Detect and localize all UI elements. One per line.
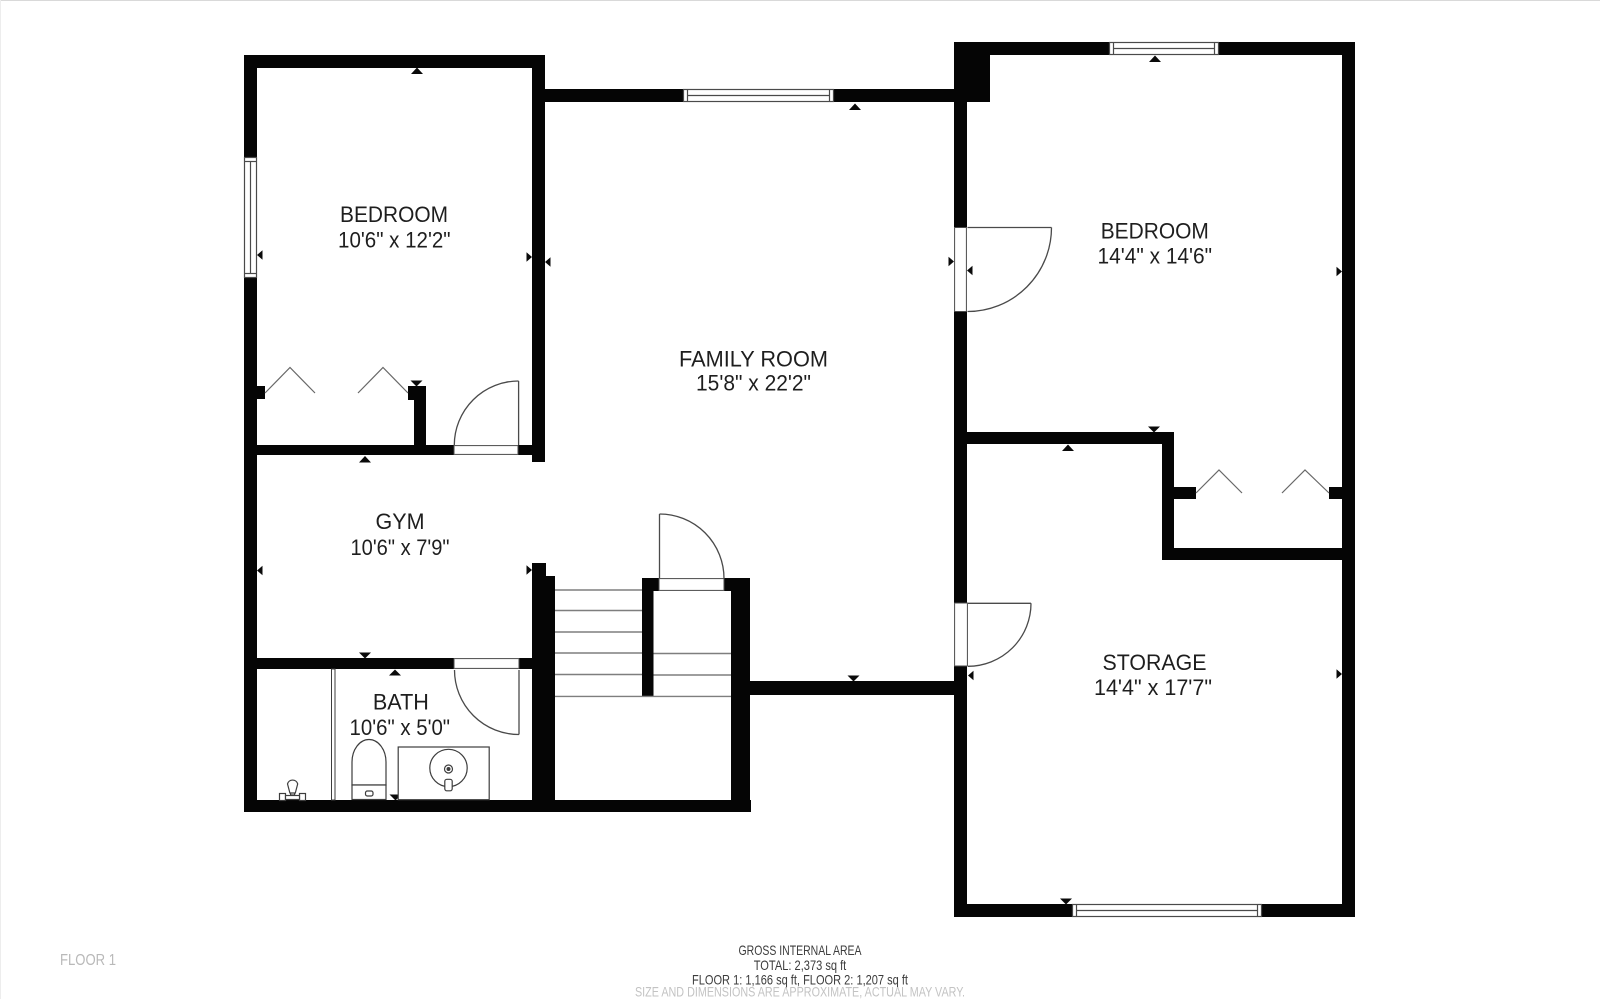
- svg-text:BATH: BATH: [373, 690, 429, 715]
- svg-text:BEDROOM: BEDROOM: [1101, 219, 1209, 244]
- svg-text:10'6" x 12'2": 10'6" x 12'2": [338, 228, 451, 253]
- svg-text:15'8" x 22'2": 15'8" x 22'2": [696, 371, 811, 396]
- svg-text:FAMILY ROOM: FAMILY ROOM: [679, 347, 828, 372]
- svg-text:10'6" x 5'0": 10'6" x 5'0": [350, 715, 451, 740]
- svg-text:GYM: GYM: [376, 509, 425, 534]
- svg-text:FLOOR 1: FLOOR 1: [60, 952, 116, 969]
- svg-text:14'4" x 14'6": 14'4" x 14'6": [1098, 244, 1213, 269]
- svg-text:GROSS INTERNAL AREA: GROSS INTERNAL AREA: [739, 942, 862, 958]
- svg-text:14'4" x 17'7": 14'4" x 17'7": [1094, 675, 1212, 700]
- svg-text:STORAGE: STORAGE: [1103, 650, 1207, 675]
- svg-text:10'6" x 7'9": 10'6" x 7'9": [351, 535, 450, 560]
- svg-text:SIZE AND DIMENSIONS ARE APPROX: SIZE AND DIMENSIONS ARE APPROXIMATE, ACT…: [635, 984, 965, 999]
- svg-text:BEDROOM: BEDROOM: [340, 202, 448, 227]
